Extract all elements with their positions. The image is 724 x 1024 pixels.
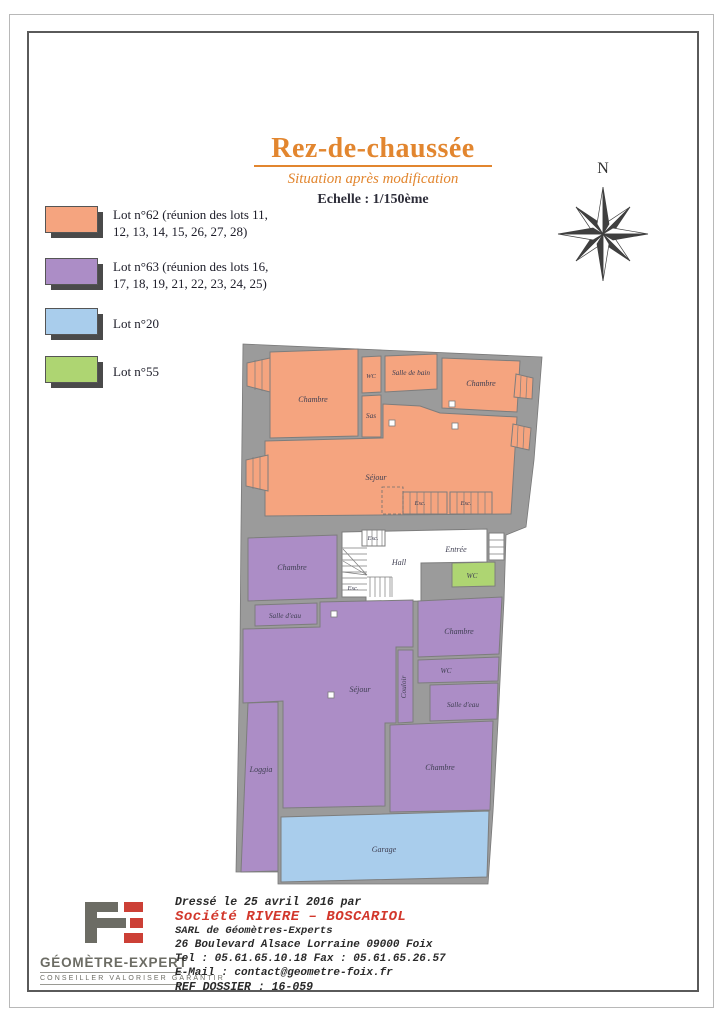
legend-label-lot63: Lot n°63 (réunion des lots 16, 17, 18, 1… bbox=[113, 258, 281, 294]
legend-lot62-line2: 12, 13, 14, 15, 26, 27, 28) bbox=[113, 224, 247, 239]
label-loggia: Loggia bbox=[249, 765, 273, 774]
label-chambre-tr: Chambre bbox=[466, 379, 496, 388]
lot55-swatch bbox=[45, 356, 107, 392]
label-couloir: Couloir bbox=[399, 675, 408, 698]
room-chambre-top-left bbox=[270, 349, 358, 438]
lot62-swatch bbox=[45, 206, 107, 242]
label-salle-deau-right: Salle d'eau bbox=[447, 700, 480, 709]
label-chambre-tl: Chambre bbox=[298, 395, 328, 404]
company-logo: GÉOMÈTRE-EXPERT CONSEILLER VALORISER GAR… bbox=[40, 899, 182, 985]
logo-tagline: CONSEILLER VALORISER GARANTIR bbox=[40, 972, 182, 985]
bay-window-right-1 bbox=[514, 374, 533, 399]
document-page: Rez-de-chaussée Situation après modifica… bbox=[0, 0, 724, 1024]
label-wc-green: WC bbox=[467, 571, 478, 580]
bay-window-left-1 bbox=[247, 358, 270, 392]
label-chambre-br: Chambre bbox=[425, 763, 455, 772]
label-sejour-purple: Séjour bbox=[350, 685, 372, 694]
company-address: 26 Boulevard Alsace Lorraine 09000 Foix bbox=[175, 938, 446, 952]
label-esc-4: Esc. bbox=[346, 585, 358, 592]
label-esc-3: Esc. bbox=[366, 535, 378, 542]
footer-text-block: Dressé le 25 avril 2016 par Société RIVE… bbox=[175, 896, 446, 995]
label-sas: Sas bbox=[366, 411, 376, 420]
lot63-swatch bbox=[45, 258, 107, 294]
label-wc-right: WC bbox=[441, 666, 452, 675]
dossier-ref: REF DOSSIER : 16-059 bbox=[175, 980, 446, 995]
lot20-swatch bbox=[45, 308, 107, 344]
room-loggia bbox=[241, 702, 278, 872]
legend-lot63-line1: Lot n°63 (réunion des lots 16, bbox=[113, 259, 268, 274]
compass-rose: N bbox=[555, 152, 655, 287]
compass-north-label: N bbox=[597, 160, 609, 177]
label-esc-2: Esc. bbox=[459, 500, 471, 507]
label-salle-deau-left: Salle d'eau bbox=[269, 611, 302, 620]
legend-item-lot63: Lot n°63 (réunion des lots 16, 17, 18, 1… bbox=[45, 258, 281, 294]
label-esc-1: Esc. bbox=[413, 500, 425, 507]
company-type: SARL de Géomètres-Experts bbox=[175, 925, 446, 938]
label-entree: Entrée bbox=[444, 545, 467, 554]
label-garage: Garage bbox=[372, 845, 397, 854]
compass-star-icon bbox=[558, 187, 648, 281]
company-phone: Tel : 05.61.65.10.18 Fax : 05.61.65.26.5… bbox=[175, 952, 446, 966]
title-underline bbox=[254, 165, 492, 167]
geometre-expert-logo-icon bbox=[78, 899, 145, 945]
floor-plan: Chambre WC Salle de bain Chambre Sas Séj… bbox=[230, 330, 550, 900]
legend-lot63-line2: 17, 18, 19, 21, 22, 23, 24, 25) bbox=[113, 276, 267, 291]
company-name: Société RIVERE – BOSCARIOL bbox=[175, 910, 446, 925]
label-sejour-orange: Séjour bbox=[366, 473, 388, 482]
drafted-line: Dressé le 25 avril 2016 par bbox=[175, 896, 446, 910]
label-wc-top: WC bbox=[366, 373, 376, 380]
legend-label-lot62: Lot n°62 (réunion des lots 11, 12, 13, 1… bbox=[113, 206, 281, 242]
label-chambre-left: Chambre bbox=[277, 563, 307, 572]
label-chambre-right: Chambre bbox=[444, 627, 474, 636]
legend-item-lot62: Lot n°62 (réunion des lots 11, 12, 13, 1… bbox=[45, 206, 281, 242]
logo-name: GÉOMÈTRE-EXPERT bbox=[40, 955, 182, 970]
entry-steps bbox=[489, 533, 504, 560]
label-hall: Hall bbox=[391, 558, 407, 567]
label-salle-de-bain: Salle de bain bbox=[392, 368, 430, 377]
legend-lot62-line1: Lot n°62 (réunion des lots 11, bbox=[113, 207, 268, 222]
company-email: E-Mail : contact@geometre-foix.fr bbox=[175, 966, 446, 980]
bay-window-right-2 bbox=[511, 424, 531, 450]
room-wc-right bbox=[418, 657, 499, 683]
bay-window-left-2 bbox=[246, 455, 268, 491]
